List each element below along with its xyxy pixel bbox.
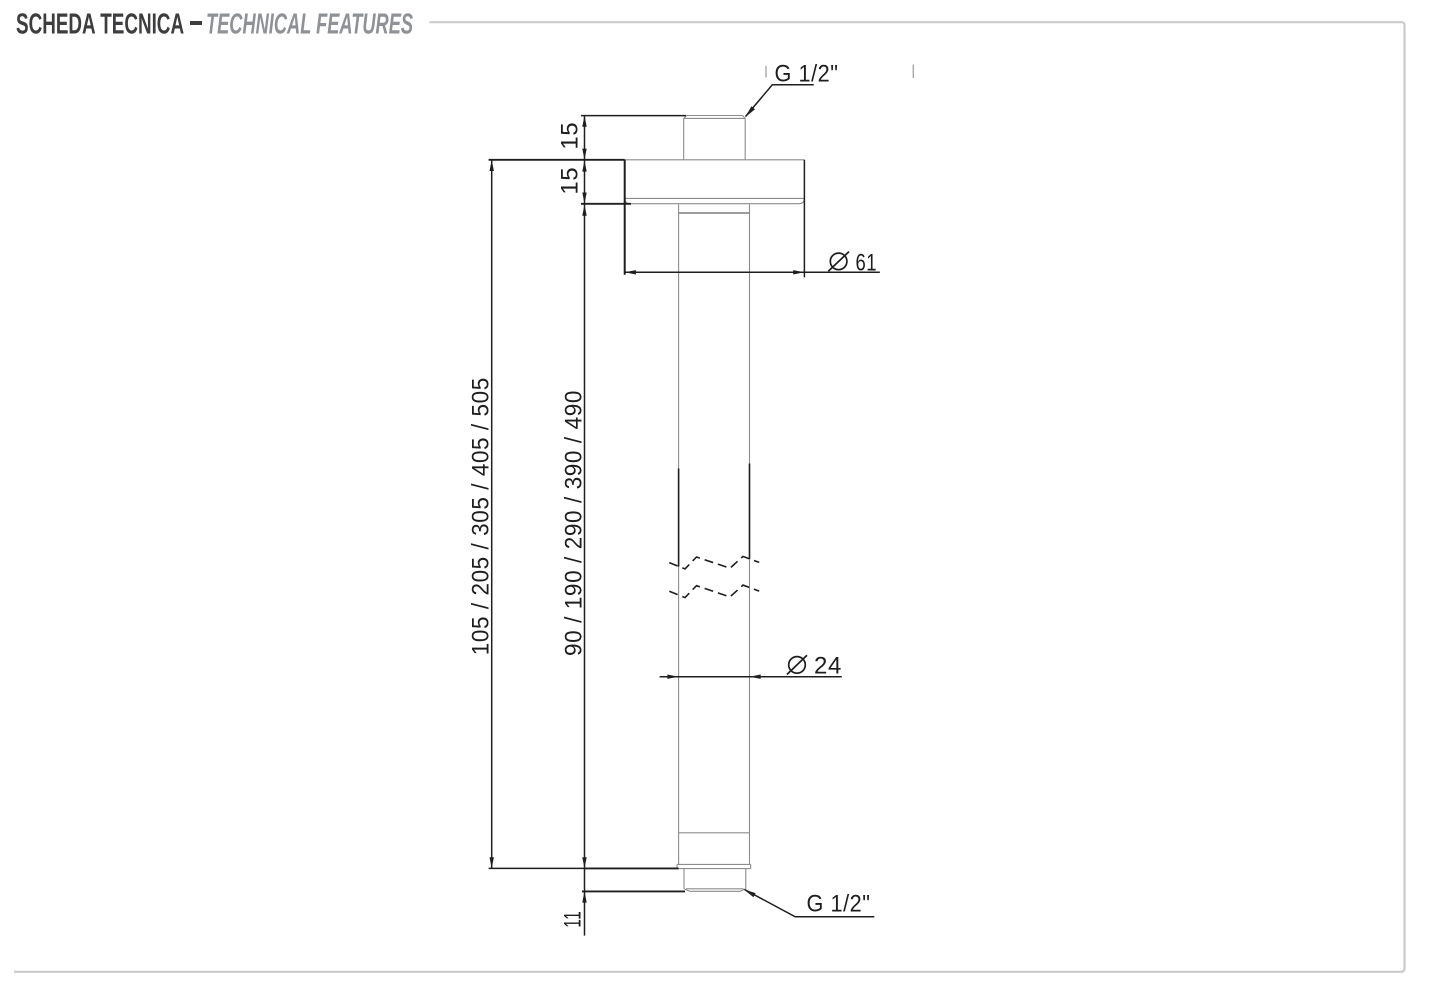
svg-text:24: 24 [814,652,842,679]
svg-text:90 / 190 / 290 / 390 / 490: 90 / 190 / 290 / 390 / 490 [560,390,587,656]
svg-text:11: 11 [559,911,586,928]
svg-text:105 / 205 / 305 / 405 / 505: 105 / 205 / 305 / 405 / 505 [468,377,495,655]
svg-text:SCHEDA TECNICA: SCHEDA TECNICA [16,9,184,41]
svg-text:G 1/2": G 1/2" [775,61,839,88]
svg-text:TECHNICAL FEATURES: TECHNICAL FEATURES [206,8,413,40]
svg-text:G 1/2": G 1/2" [807,890,871,917]
svg-text:15: 15 [556,122,583,150]
svg-text:61: 61 [856,249,878,276]
svg-text:15: 15 [556,167,583,195]
